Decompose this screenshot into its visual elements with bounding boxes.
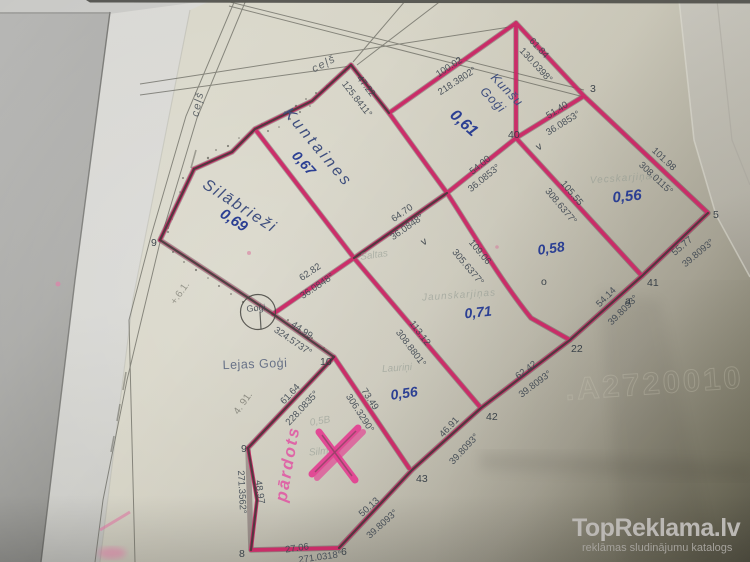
svg-text:reklāmas sludinājumu katalogs: reklāmas sludinājumu katalogs: [582, 542, 733, 554]
svg-text:42: 42: [486, 411, 498, 423]
svg-text:Goģi: Goģi: [246, 302, 266, 314]
svg-text:3: 3: [590, 83, 596, 95]
svg-text:271.3562°: 271.3562°: [235, 470, 248, 514]
svg-text:10: 10: [320, 356, 332, 368]
svg-text:Lauriņi: Lauriņi: [382, 362, 413, 375]
svg-text:Lejas Goģi: Lejas Goģi: [222, 356, 287, 372]
svg-text:40: 40: [508, 129, 520, 141]
svg-text:0,56: 0,56: [612, 186, 643, 206]
svg-text:8: 8: [239, 548, 245, 560]
svg-text:22: 22: [571, 343, 583, 355]
svg-text:TopReklama.lv: TopReklama.lv: [572, 514, 741, 542]
svg-text:9: 9: [151, 237, 157, 249]
svg-text:a: a: [625, 295, 631, 307]
svg-text:9: 9: [241, 443, 247, 455]
svg-text:0,71: 0,71: [464, 303, 493, 322]
svg-text:6: 6: [341, 546, 347, 558]
svg-text:5: 5: [713, 209, 719, 221]
svg-text:o: o: [541, 276, 547, 288]
svg-text:43: 43: [416, 473, 428, 485]
svg-text:41: 41: [647, 277, 659, 289]
